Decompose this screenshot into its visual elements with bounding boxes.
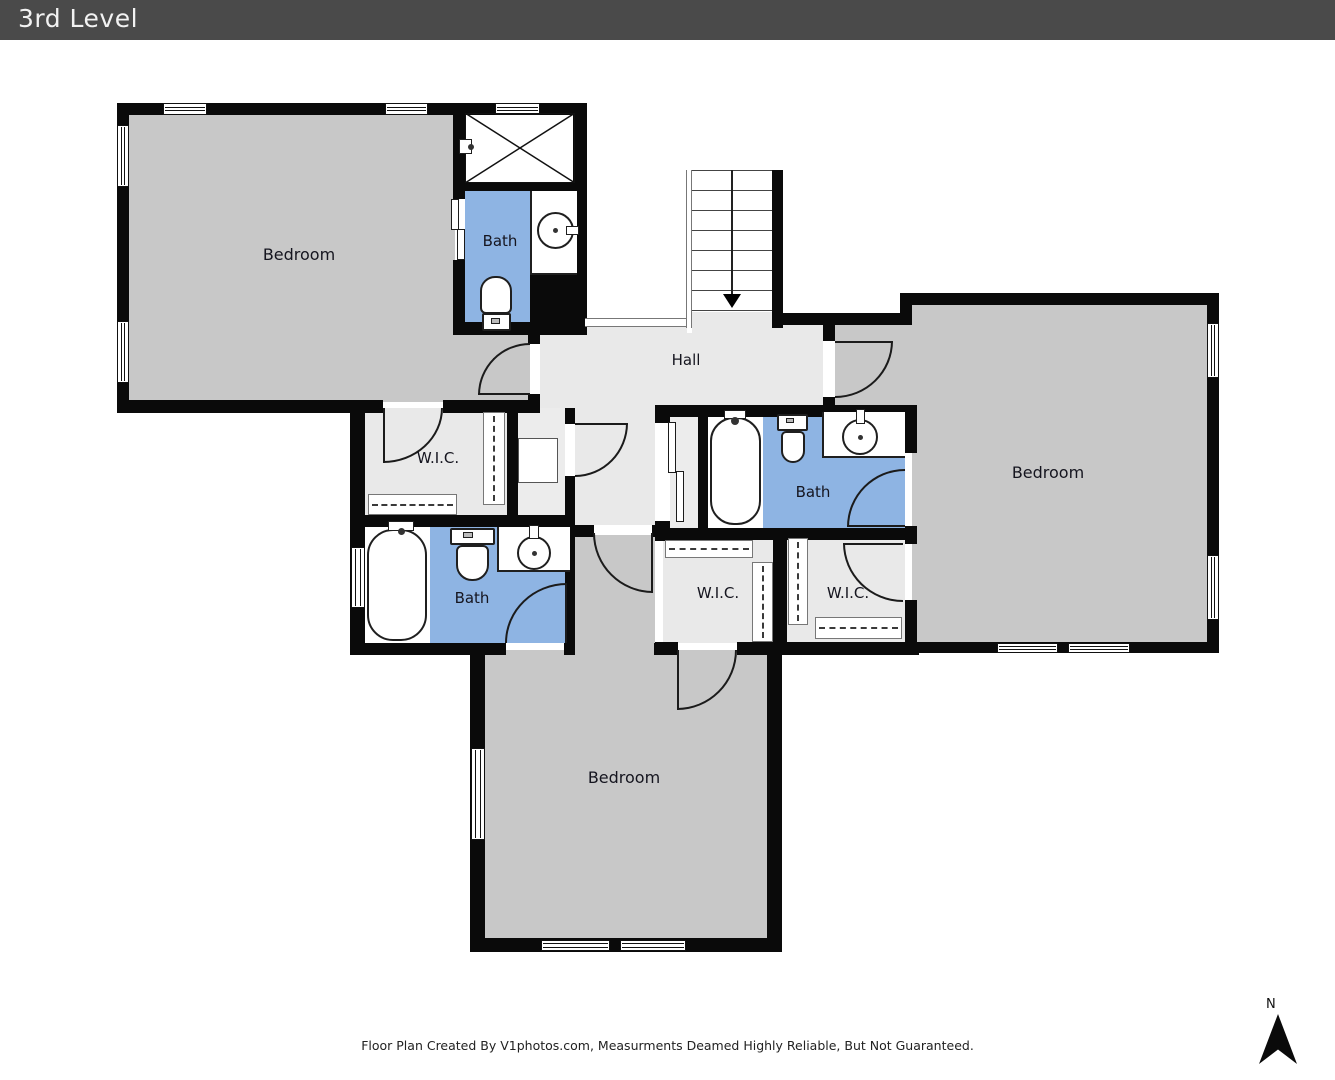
wall — [564, 643, 575, 655]
shower-stall-icon — [465, 113, 575, 183]
closet-rod — [788, 538, 808, 625]
window — [541, 940, 610, 951]
window — [385, 103, 428, 115]
sink-drain — [858, 435, 863, 440]
room-bedroom-bottom-floor — [485, 650, 767, 938]
pocket-door-bath-top — [451, 199, 459, 230]
faucet-icon — [566, 226, 579, 235]
room-label-bedroom-top-left: Bedroom — [219, 245, 379, 264]
toilet-flush-button — [786, 418, 794, 423]
closet-rod — [665, 540, 753, 558]
floor-plan-page: 3rd Level — [0, 0, 1335, 1080]
wall — [453, 185, 465, 199]
shower-head-icon — [731, 417, 739, 425]
window — [163, 103, 207, 115]
footer-disclaimer: Floor Plan Created By V1photos.com, Meas… — [0, 1038, 1335, 1053]
toilet-icon — [480, 276, 512, 314]
window — [117, 125, 129, 187]
wall — [350, 515, 575, 527]
room-label-wic-right: W.I.C. — [803, 584, 893, 602]
wall — [905, 526, 917, 544]
window — [1207, 555, 1219, 620]
faucet-icon — [529, 525, 539, 539]
stairwell-guard-rail — [585, 318, 686, 327]
window — [997, 643, 1058, 653]
toilet-icon — [781, 431, 805, 463]
shower-valve-knob — [468, 144, 474, 150]
wall — [767, 643, 782, 952]
wall — [900, 293, 1219, 305]
wall — [453, 182, 587, 191]
room-label-bedroom-right: Bedroom — [968, 463, 1128, 482]
wall — [905, 405, 917, 453]
window — [351, 547, 365, 608]
room-label-wic-center: W.I.C. — [673, 584, 763, 602]
wall — [655, 642, 678, 655]
bathtub-icon — [367, 529, 427, 641]
sink-drain — [553, 228, 558, 233]
wall — [900, 293, 912, 325]
room-label-bath-top: Bath — [460, 232, 540, 250]
wall — [698, 412, 708, 529]
toilet-icon — [456, 545, 489, 581]
wall — [565, 408, 575, 424]
room-label-bath-right: Bath — [773, 483, 853, 501]
window — [1068, 643, 1130, 653]
faucet-icon — [856, 409, 865, 424]
toilet-flush-button — [463, 532, 473, 538]
closet-rod — [815, 617, 902, 639]
window — [117, 321, 129, 383]
wall — [507, 408, 518, 516]
sliding-door-linen-closet — [668, 422, 676, 473]
stairs-center-line — [731, 170, 733, 296]
closet-shelf-box — [518, 438, 558, 483]
sliding-door-linen-closet — [676, 471, 684, 522]
room-label-bath-left: Bath — [432, 589, 512, 607]
wall — [772, 313, 912, 325]
wall — [528, 394, 540, 413]
closet-rod — [752, 562, 773, 642]
wall — [737, 642, 919, 655]
wall — [655, 405, 670, 423]
wall — [453, 260, 465, 335]
room-hall-floor — [587, 327, 687, 412]
wall — [823, 325, 835, 341]
toilet-flush-button — [491, 318, 500, 324]
window — [471, 748, 485, 840]
wall — [117, 400, 383, 413]
room-label-hall: Hall — [641, 351, 731, 369]
wall — [905, 600, 917, 643]
title-bar: 3rd Level — [0, 0, 1335, 40]
wall — [823, 397, 835, 412]
room-hall-floor — [772, 325, 823, 412]
window — [620, 940, 686, 951]
stairs-down-arrow-icon — [723, 294, 741, 308]
room-label-wic-left: W.I.C. — [393, 449, 483, 467]
compass-north-label: N — [1266, 997, 1276, 1012]
tub-drain — [398, 528, 405, 535]
stairwell-wall — [772, 170, 783, 328]
closet-rod — [483, 412, 505, 505]
sink-drain — [532, 551, 537, 556]
closet-shelf — [368, 494, 457, 515]
wall — [350, 400, 365, 655]
bathtub-icon — [710, 417, 761, 525]
window — [1207, 323, 1219, 378]
page-title: 3rd Level — [18, 4, 138, 33]
wall — [773, 538, 787, 643]
wall-chase-block — [530, 275, 587, 335]
room-label-bedroom-bottom: Bedroom — [544, 768, 704, 787]
wall — [900, 642, 1219, 653]
